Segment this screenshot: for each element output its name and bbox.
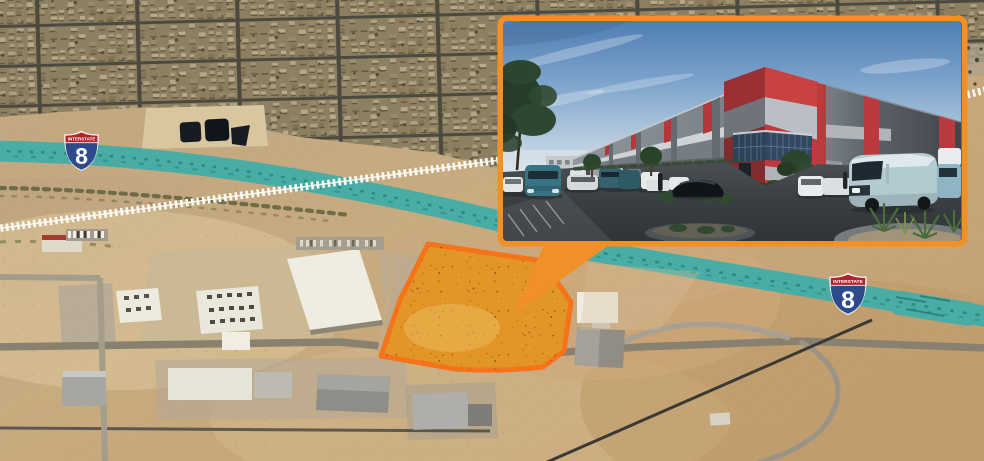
svg-text:8: 8 [75,143,88,169]
svg-text:INTERSTATE: INTERSTATE [833,279,863,285]
svg-text:INTERSTATE: INTERSTATE [68,137,96,142]
svg-text:8: 8 [841,287,855,314]
